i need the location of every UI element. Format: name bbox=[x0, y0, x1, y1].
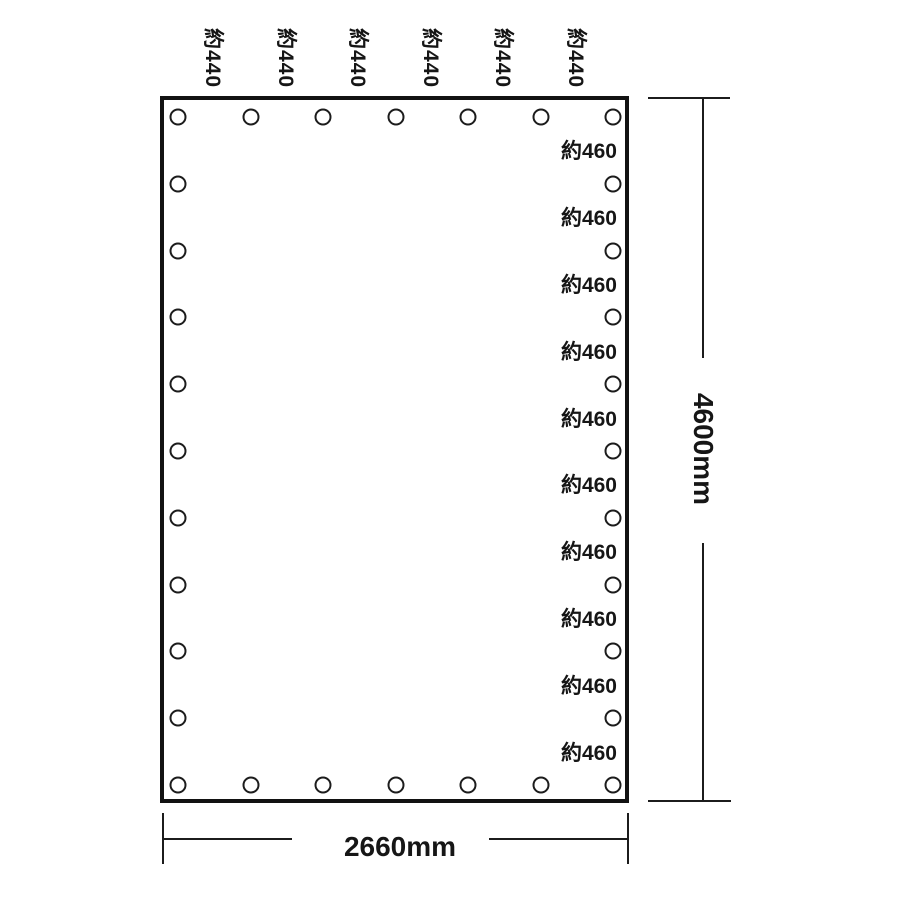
top-spacing-label: 約440 bbox=[489, 28, 519, 88]
height-dimension-line-lower bbox=[702, 543, 704, 802]
width-dimension-label: 2660mm bbox=[344, 831, 456, 863]
side-spacing-label: 約460 bbox=[561, 469, 617, 499]
grommet-icon bbox=[315, 109, 332, 126]
height-dimension-bottom-tick bbox=[648, 800, 731, 802]
grommet-icon bbox=[532, 109, 549, 126]
grommet-icon bbox=[605, 242, 622, 259]
width-dimension-right-tick bbox=[627, 813, 629, 864]
grommet-icon bbox=[532, 777, 549, 794]
grommet-icon bbox=[170, 443, 187, 460]
height-dimension-label: 4600mm bbox=[687, 393, 719, 505]
top-spacing-label: 約440 bbox=[344, 28, 374, 88]
tarp-dimension-diagram: 約440約440約440約440約440約440 約460約460約460約46… bbox=[0, 0, 900, 900]
grommet-icon bbox=[605, 576, 622, 593]
height-dimension-top-tick bbox=[648, 97, 730, 99]
grommet-icon bbox=[170, 509, 187, 526]
grommet-icon bbox=[605, 710, 622, 727]
grommet-icon bbox=[315, 777, 332, 794]
width-dimension-line-left bbox=[163, 838, 292, 840]
grommet-icon bbox=[605, 443, 622, 460]
grommet-icon bbox=[170, 643, 187, 660]
width-dimension-line-right bbox=[489, 838, 629, 840]
side-spacing-label: 約460 bbox=[561, 670, 617, 700]
side-spacing-label: 約460 bbox=[561, 737, 617, 767]
grommet-icon bbox=[242, 777, 259, 794]
grommet-icon bbox=[387, 109, 404, 126]
height-dimension-line-upper bbox=[702, 97, 704, 358]
grommet-icon bbox=[387, 777, 404, 794]
tarp-outline bbox=[160, 96, 629, 803]
grommet-icon bbox=[170, 710, 187, 727]
top-spacing-label: 約440 bbox=[199, 28, 229, 88]
grommet-icon bbox=[170, 242, 187, 259]
side-spacing-label: 約460 bbox=[561, 403, 617, 433]
grommet-icon bbox=[460, 109, 477, 126]
grommet-icon bbox=[605, 509, 622, 526]
side-spacing-label: 約460 bbox=[561, 135, 617, 165]
grommet-icon bbox=[460, 777, 477, 794]
side-spacing-label: 約460 bbox=[561, 536, 617, 566]
grommet-icon bbox=[605, 376, 622, 393]
top-spacing-label: 約440 bbox=[272, 28, 302, 88]
top-spacing-label: 約440 bbox=[562, 28, 592, 88]
grommet-icon bbox=[605, 777, 622, 794]
grommet-icon bbox=[170, 175, 187, 192]
grommet-icon bbox=[605, 643, 622, 660]
grommet-icon bbox=[170, 309, 187, 326]
grommet-icon bbox=[170, 777, 187, 794]
side-spacing-label: 約460 bbox=[561, 336, 617, 366]
grommet-icon bbox=[170, 576, 187, 593]
top-spacing-label: 約440 bbox=[417, 28, 447, 88]
side-spacing-label: 約460 bbox=[561, 603, 617, 633]
grommet-icon bbox=[605, 175, 622, 192]
grommet-icon bbox=[170, 109, 187, 126]
grommet-icon bbox=[605, 109, 622, 126]
side-spacing-label: 約460 bbox=[561, 269, 617, 299]
grommet-icon bbox=[605, 309, 622, 326]
side-spacing-label: 約460 bbox=[561, 202, 617, 232]
grommet-icon bbox=[170, 376, 187, 393]
grommet-icon bbox=[242, 109, 259, 126]
